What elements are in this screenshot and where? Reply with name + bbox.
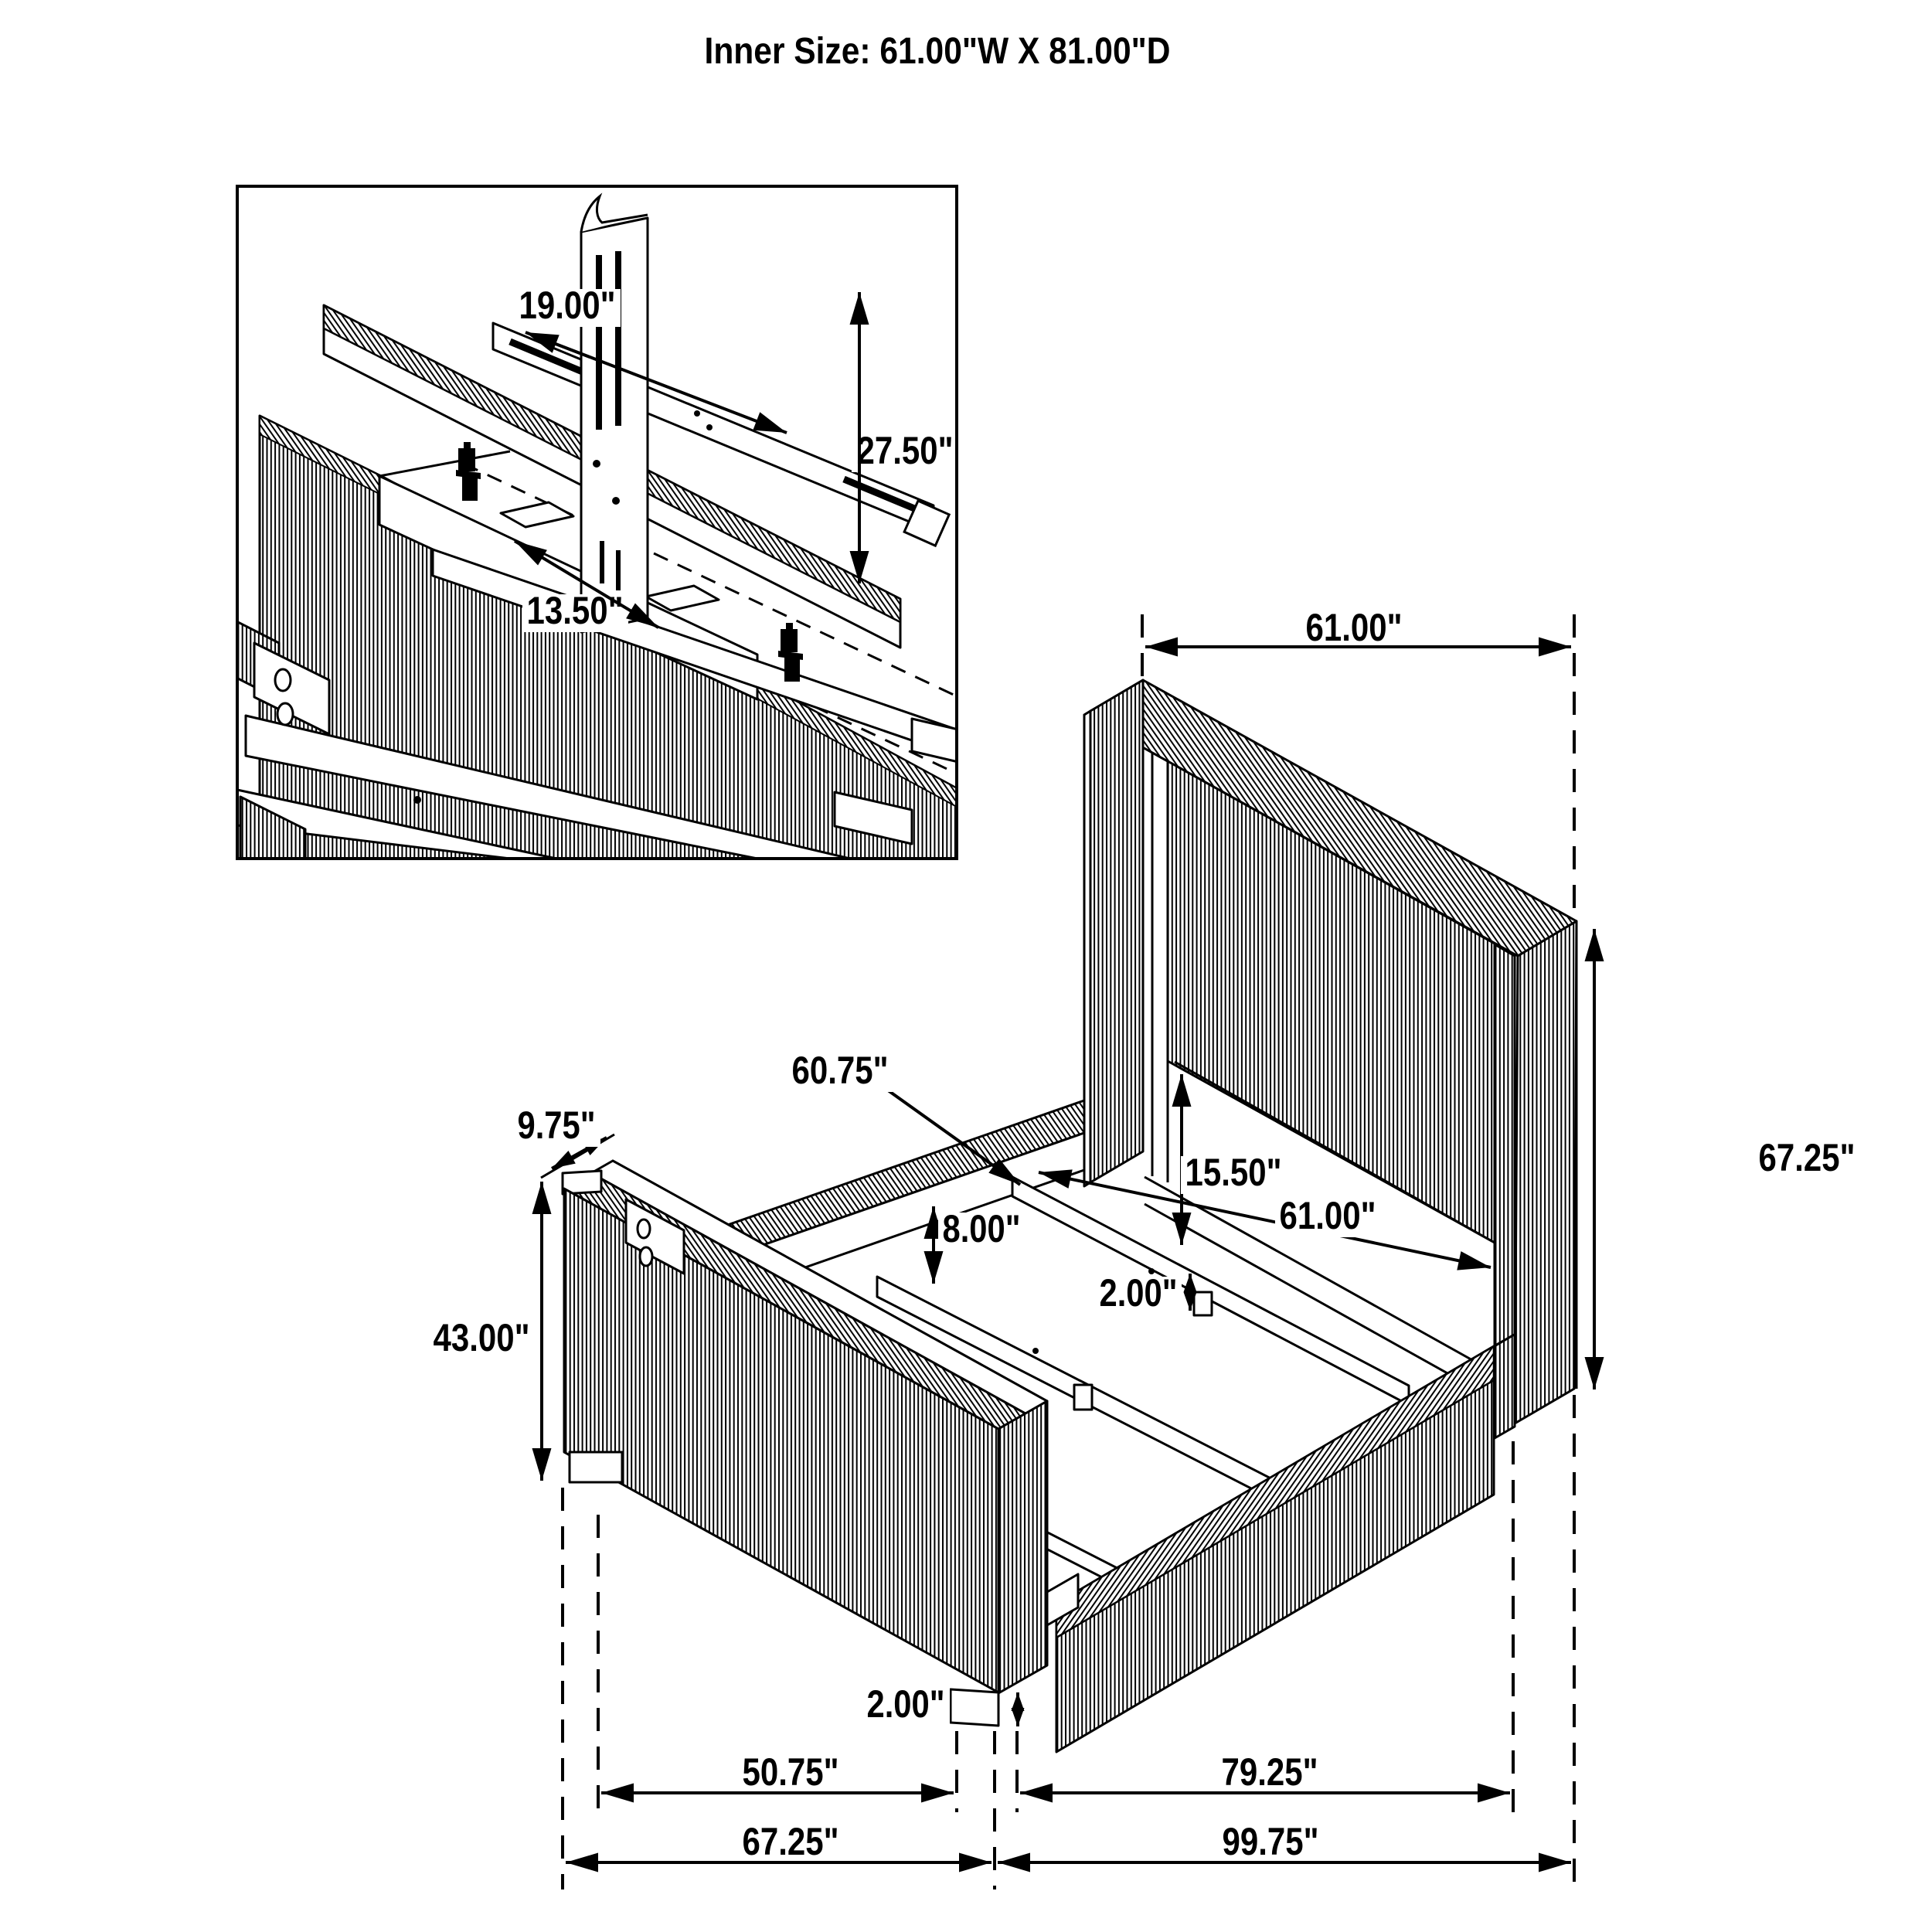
svg-text:67.25": 67.25" [1759, 1136, 1855, 1179]
svg-text:2.00": 2.00" [1100, 1271, 1178, 1315]
svg-text:8.00": 8.00" [943, 1207, 1021, 1250]
svg-text:15.50": 15.50" [1185, 1151, 1282, 1194]
svg-text:9.75": 9.75" [518, 1104, 596, 1147]
svg-text:Inner Size: 61.00"W X 81.00"D: Inner Size: 61.00"W X 81.00"D [705, 31, 1171, 72]
svg-text:2.00": 2.00" [867, 1682, 945, 1726]
svg-text:43.00": 43.00" [434, 1316, 530, 1359]
svg-text:67.25": 67.25" [743, 1820, 839, 1863]
svg-text:13.50": 13.50" [527, 589, 624, 632]
svg-text:61.00": 61.00" [1280, 1194, 1376, 1237]
svg-text:79.25": 79.25" [1222, 1750, 1318, 1794]
svg-text:27.50": 27.50" [857, 429, 954, 472]
svg-text:61.00": 61.00" [1306, 606, 1403, 649]
svg-text:60.75": 60.75" [792, 1049, 889, 1092]
svg-text:50.75": 50.75" [743, 1750, 839, 1794]
svg-text:99.75": 99.75" [1223, 1820, 1319, 1863]
svg-text:19.00": 19.00" [519, 284, 616, 327]
